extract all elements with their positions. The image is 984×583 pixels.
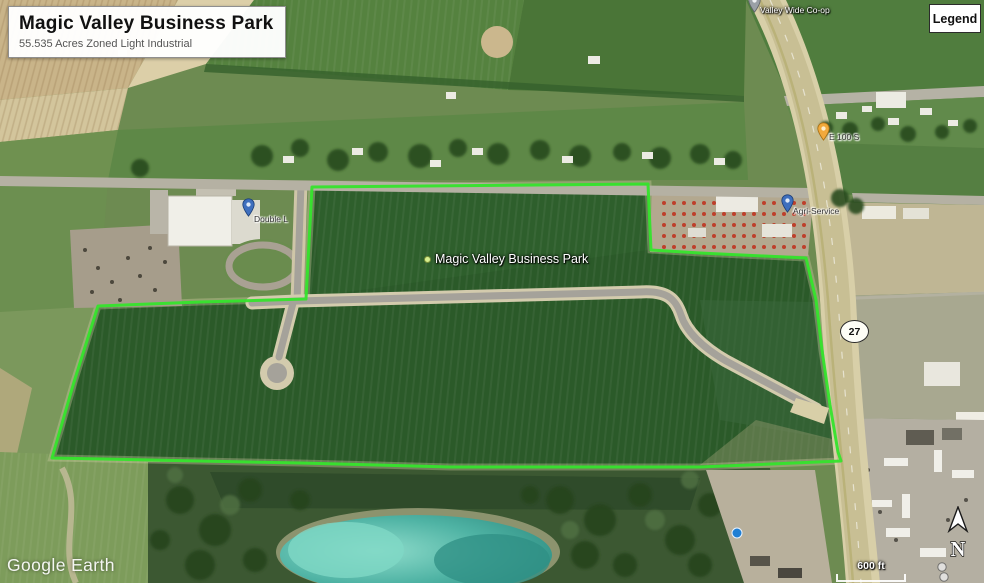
site-placemark-label: Magic Valley Business Park	[435, 252, 588, 266]
compass-north-label: N	[950, 537, 965, 561]
placemark-label: Valley Wide Co-op	[760, 5, 830, 15]
aerial-map[interactable]	[0, 0, 984, 583]
scale-label: 600 ft	[836, 560, 906, 572]
scale-bar	[836, 574, 906, 582]
placemark-agri-service[interactable]: Agri-Service	[781, 194, 794, 213]
page-subtitle: 55.535 Acres Zoned Light Industrial	[19, 38, 273, 50]
scale-tick	[904, 574, 906, 580]
page-title: Magic Valley Business Park	[19, 13, 273, 35]
placemark-valley-wide[interactable]: Valley Wide Co-op	[748, 0, 761, 13]
google-earth-watermark: Google Earth	[7, 555, 115, 576]
placemark-double-l[interactable]: Double L	[242, 198, 255, 217]
scale-indicator: 600 ft	[836, 560, 906, 582]
google-earth-viewport[interactable]: Magic Valley Business Park 55.535 Acres …	[0, 0, 984, 583]
placemark-label: E 100 S	[829, 132, 859, 142]
legend-button[interactable]: Legend	[929, 4, 981, 33]
placemark-label: Agri-Service	[793, 206, 839, 216]
route-number: 27	[849, 326, 861, 338]
placemark-e-100-s[interactable]: E 100 S	[817, 122, 830, 141]
compass-detail-icon	[938, 563, 946, 571]
placemark-dot-icon	[424, 256, 431, 263]
route-shield-27: 27	[840, 320, 869, 343]
compass-detail-icon	[940, 573, 948, 581]
scale-tick	[836, 574, 838, 580]
north-compass[interactable]: N	[934, 506, 974, 582]
site-placemark[interactable]: Magic Valley Business Park	[424, 252, 588, 266]
placemark-label: Double L	[254, 214, 288, 224]
north-arrow-icon	[949, 507, 967, 531]
riparian-trees-layer	[148, 462, 790, 583]
title-card: Magic Valley Business Park 55.535 Acres …	[8, 6, 286, 58]
